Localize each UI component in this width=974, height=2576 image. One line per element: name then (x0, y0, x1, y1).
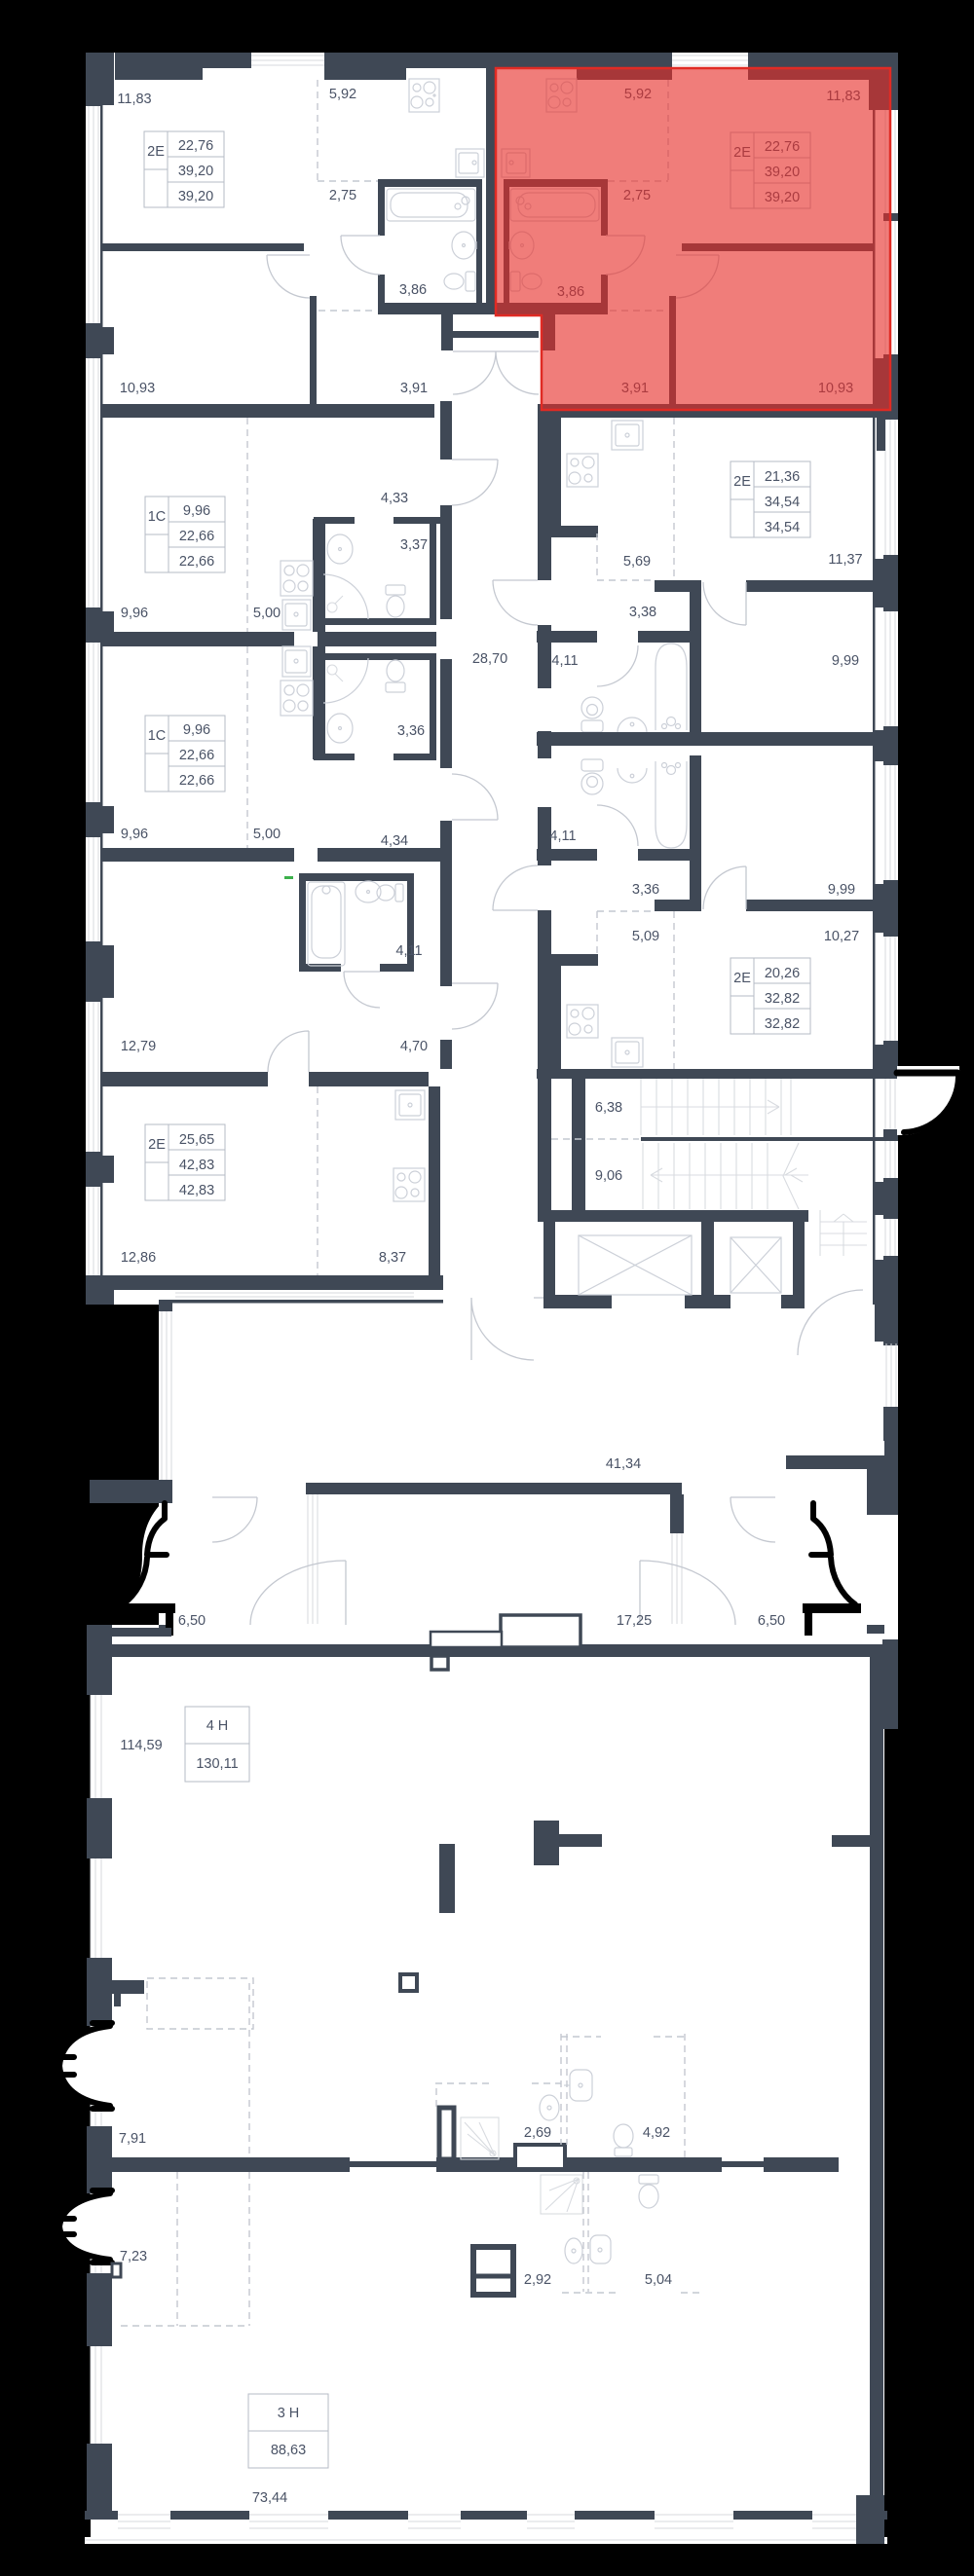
svg-text:32,82: 32,82 (765, 1016, 800, 1032)
svg-text:21,36: 21,36 (765, 469, 800, 485)
svg-text:5,00: 5,00 (253, 827, 281, 842)
svg-text:3,37: 3,37 (400, 537, 428, 553)
svg-text:10,27: 10,27 (824, 929, 859, 944)
svg-text:9,96: 9,96 (121, 606, 148, 621)
svg-text:42,83: 42,83 (179, 1158, 214, 1173)
svg-text:20,26: 20,26 (765, 966, 800, 981)
svg-text:2E: 2E (733, 971, 751, 986)
svg-text:3,86: 3,86 (399, 282, 427, 298)
svg-text:9,99: 9,99 (832, 653, 859, 669)
svg-text:73,44: 73,44 (252, 2490, 287, 2506)
svg-text:2E: 2E (147, 144, 165, 160)
svg-text:22,66: 22,66 (179, 554, 214, 570)
svg-text:4,92: 4,92 (643, 2125, 670, 2141)
svg-text:8,37: 8,37 (379, 1250, 406, 1266)
svg-text:22,66: 22,66 (179, 529, 214, 544)
svg-text:4,11: 4,11 (551, 653, 578, 669)
svg-text:9,96: 9,96 (183, 503, 210, 519)
svg-text:2,69: 2,69 (524, 2125, 551, 2141)
svg-text:3,91: 3,91 (400, 381, 428, 396)
svg-text:22,76: 22,76 (178, 138, 213, 154)
svg-text:34,54: 34,54 (765, 520, 800, 535)
svg-text:3 H: 3 H (278, 2406, 300, 2421)
svg-text:4,70: 4,70 (400, 1039, 428, 1054)
svg-text:7,23: 7,23 (120, 2249, 147, 2264)
svg-text:9,96: 9,96 (183, 722, 210, 738)
svg-text:4 H: 4 H (206, 1718, 229, 1734)
svg-text:4,33: 4,33 (381, 491, 408, 506)
svg-text:3,36: 3,36 (397, 723, 425, 739)
svg-text:5,00: 5,00 (253, 606, 281, 621)
svg-text:10,93: 10,93 (120, 381, 155, 396)
svg-text:34,54: 34,54 (765, 495, 800, 510)
svg-text:4,11: 4,11 (549, 828, 576, 844)
svg-text:22,66: 22,66 (179, 748, 214, 763)
svg-text:6,50: 6,50 (758, 1613, 785, 1629)
svg-text:28,70: 28,70 (472, 651, 507, 667)
svg-text:39,20: 39,20 (178, 189, 213, 204)
svg-text:2E: 2E (148, 1137, 166, 1153)
svg-text:17,25: 17,25 (617, 1613, 652, 1629)
svg-text:9,99: 9,99 (828, 882, 855, 898)
svg-text:2E: 2E (733, 474, 751, 490)
svg-text:2,75: 2,75 (329, 188, 356, 203)
svg-text:25,65: 25,65 (179, 1132, 214, 1148)
svg-text:4,34: 4,34 (381, 833, 408, 849)
svg-text:22,66: 22,66 (179, 773, 214, 789)
svg-text:9,96: 9,96 (121, 827, 148, 842)
svg-text:6,38: 6,38 (595, 1100, 622, 1116)
svg-text:7,91: 7,91 (119, 2131, 146, 2147)
svg-text:6,50: 6,50 (178, 1613, 206, 1629)
svg-text:5,04: 5,04 (645, 2272, 672, 2288)
svg-text:5,09: 5,09 (632, 929, 659, 944)
svg-text:130,11: 130,11 (196, 1756, 238, 1772)
svg-text:1C: 1C (148, 509, 167, 525)
svg-text:9,06: 9,06 (595, 1168, 622, 1184)
svg-text:2,92: 2,92 (524, 2272, 551, 2288)
svg-text:39,20: 39,20 (178, 164, 213, 179)
svg-text:42,83: 42,83 (179, 1183, 214, 1198)
svg-text:4,11: 4,11 (395, 943, 422, 959)
svg-text:11,83: 11,83 (117, 92, 151, 107)
svg-text:1C: 1C (148, 728, 167, 744)
svg-text:12,79: 12,79 (121, 1039, 156, 1054)
svg-text:32,82: 32,82 (765, 991, 800, 1007)
svg-text:41,34: 41,34 (606, 1456, 641, 1472)
svg-text:88,63: 88,63 (271, 2443, 306, 2458)
svg-text:5,92: 5,92 (329, 87, 356, 102)
svg-text:3,38: 3,38 (629, 605, 656, 620)
svg-text:114,59: 114,59 (120, 1738, 162, 1753)
svg-text:5,69: 5,69 (623, 554, 651, 570)
svg-text:3,36: 3,36 (632, 882, 659, 898)
svg-text:12,86: 12,86 (121, 1250, 156, 1266)
svg-text:11,37: 11,37 (828, 552, 862, 568)
